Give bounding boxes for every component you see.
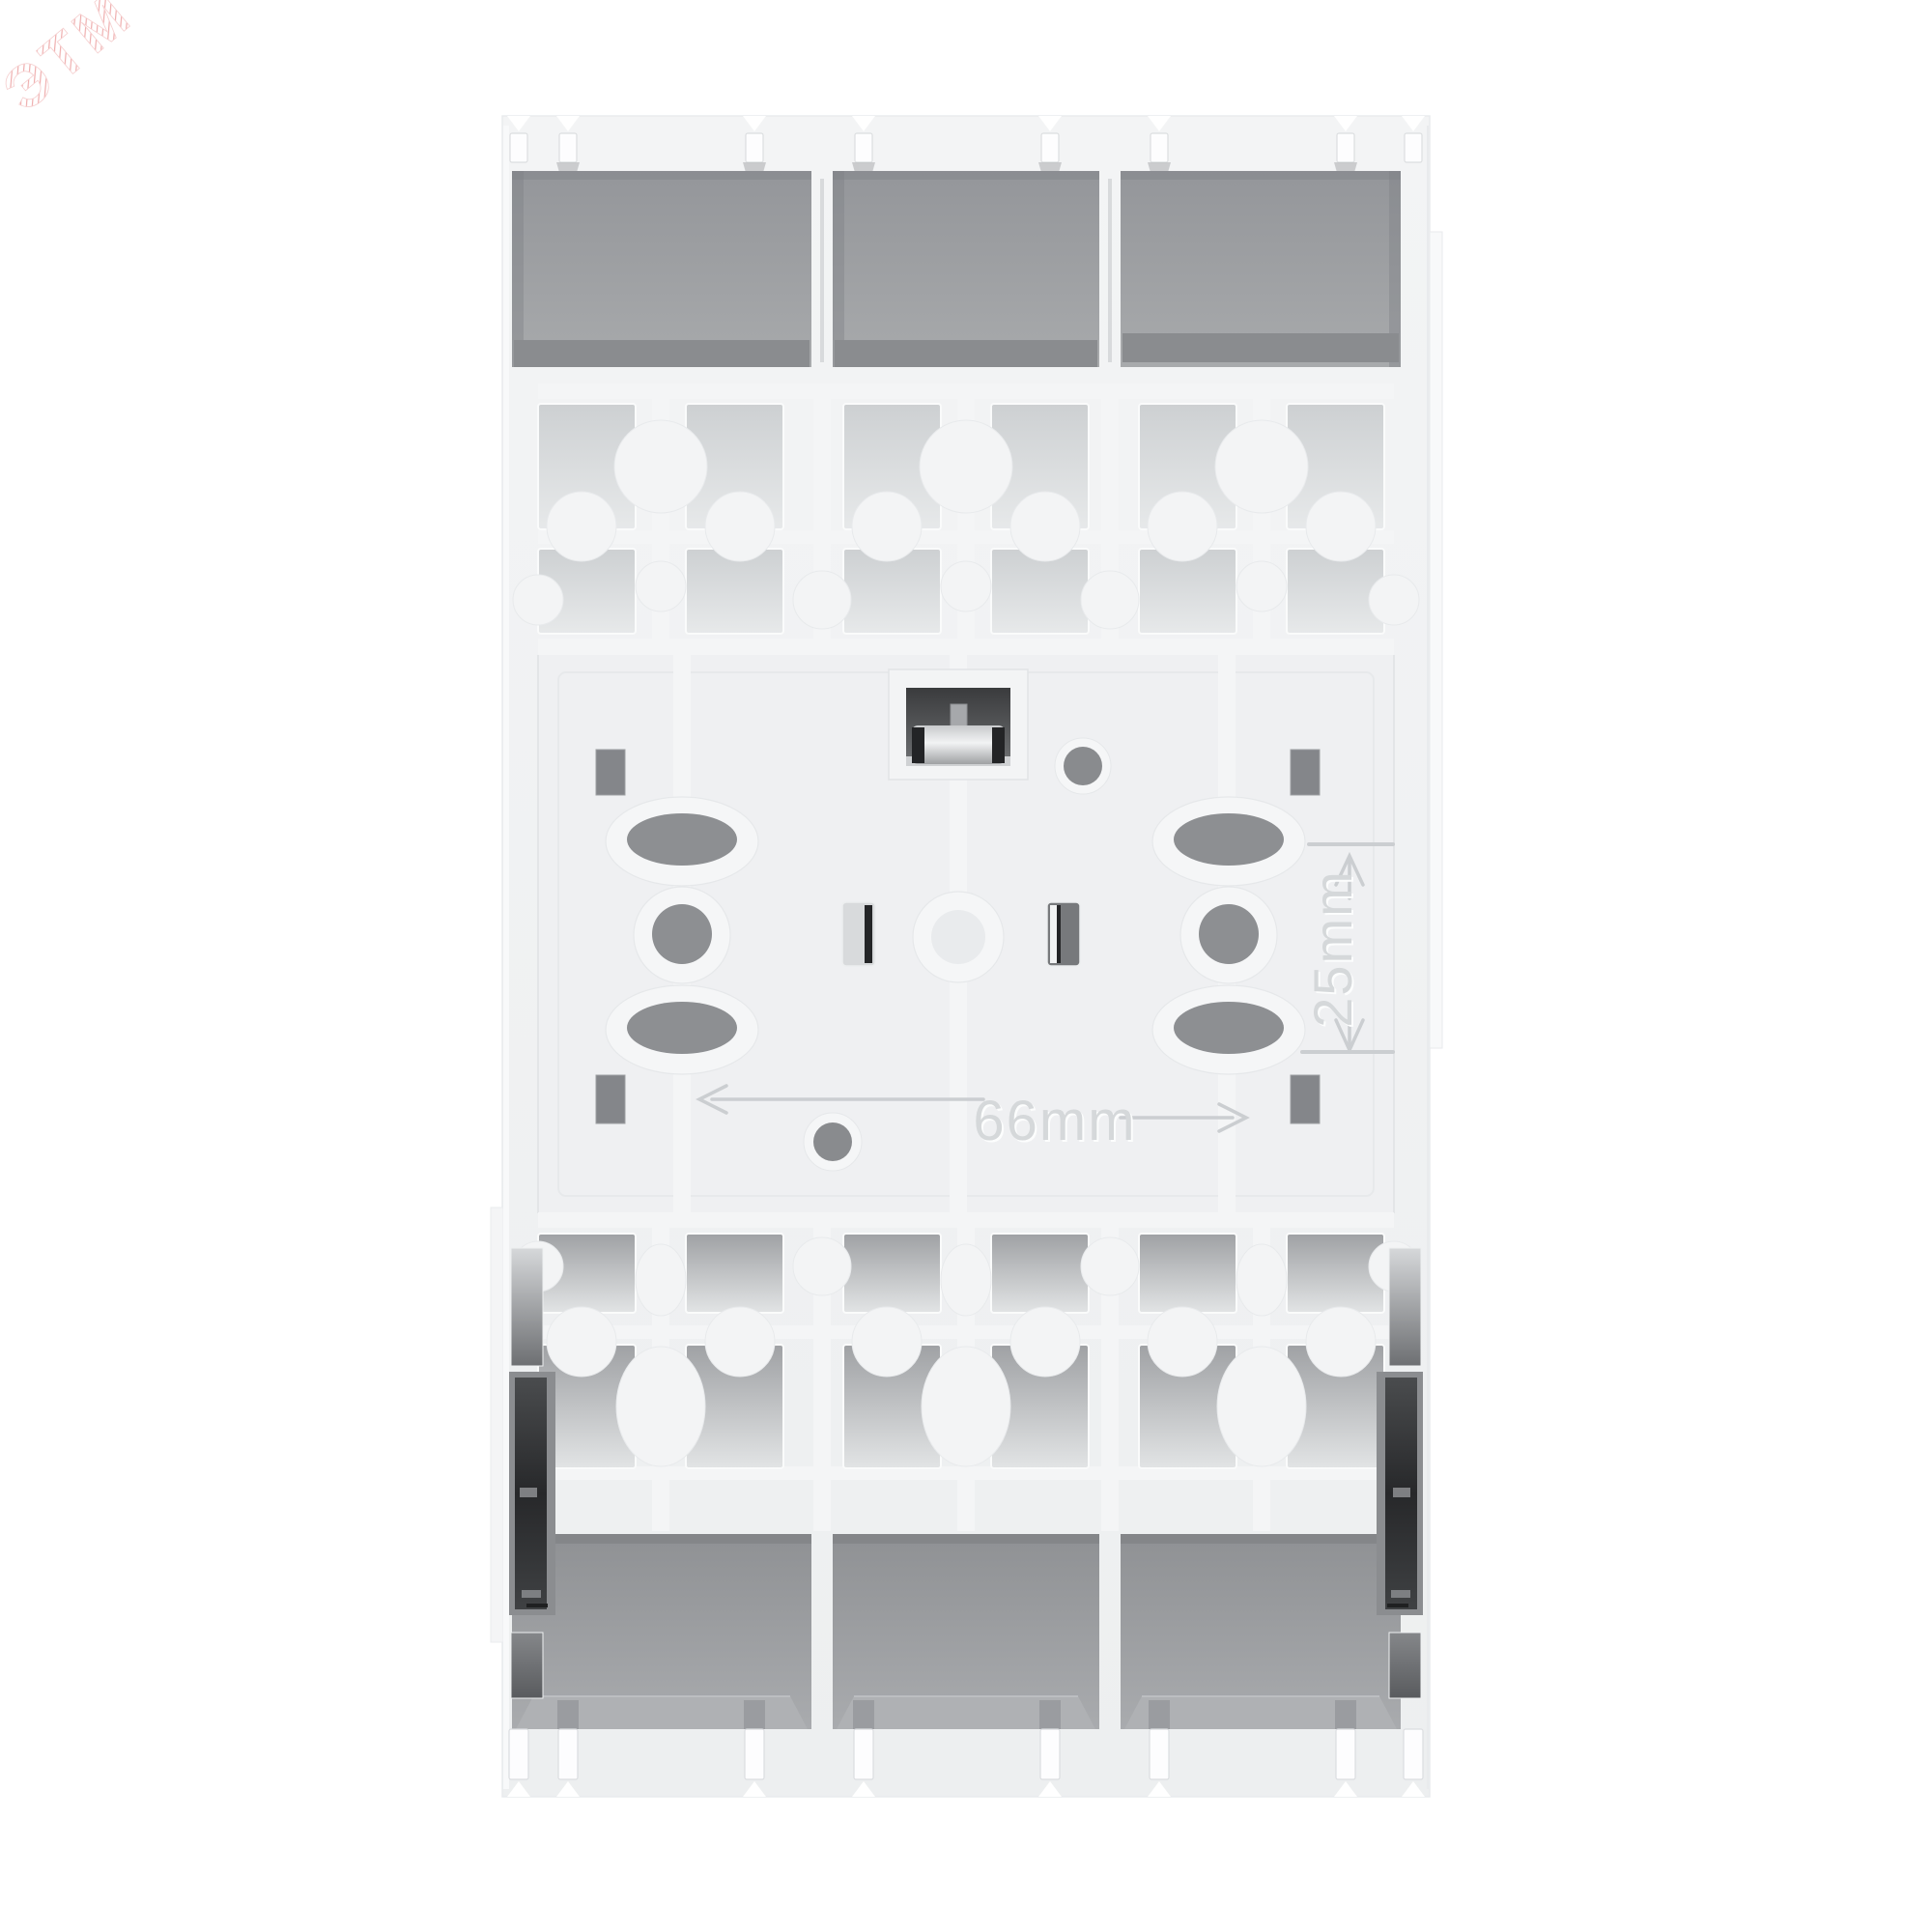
floor-latch (1335, 1700, 1356, 1729)
product-image: ЭТМ (0, 0, 1932, 1932)
slider-cap-left (912, 727, 924, 763)
device-rear-view: ЭТМ (0, 0, 1932, 1932)
boundary-boss (793, 1237, 851, 1295)
floor-latch (853, 1700, 874, 1729)
terminal-compartment (512, 1534, 811, 1729)
side-step-left (491, 1207, 503, 1642)
bottom-slot (558, 1729, 578, 1779)
boss-ellipse-small (636, 1244, 686, 1316)
top-slot (1405, 133, 1422, 162)
boss-circle-large (614, 420, 707, 513)
compartment-divider-groove (1108, 179, 1112, 362)
oval-slot (627, 1002, 737, 1054)
bottom-slot (1336, 1729, 1355, 1779)
boundary-boss (1081, 571, 1139, 629)
boss-circle (852, 1307, 922, 1377)
boss-circle-large (1215, 420, 1308, 513)
bottom-slot (854, 1729, 873, 1779)
rect-slot (1291, 1075, 1320, 1123)
rivet-boss-bottom (804, 1113, 862, 1171)
terminal-compartment (512, 171, 811, 367)
boss-circle (1306, 1307, 1376, 1377)
bottom-slot (1150, 1729, 1169, 1779)
rect-slot (596, 1075, 625, 1123)
boss-ellipse-large (922, 1347, 1010, 1466)
top-slot (1151, 133, 1168, 162)
slider-roller (912, 725, 1005, 764)
floor-latch (1039, 1700, 1061, 1729)
clip-slit-left (842, 902, 875, 966)
terminal-compartment (833, 1534, 1099, 1729)
boss-circle (852, 492, 922, 561)
watermark: ЭТМ (0, 0, 146, 125)
compartment-divider-groove (820, 179, 824, 362)
terminal-compartment (1121, 1534, 1401, 1729)
plate-edge-shadow (1393, 655, 1395, 1213)
boss-circle (1148, 1307, 1217, 1377)
body-right-shadow (1427, 126, 1429, 1789)
rib-cluster-module-3 (1139, 384, 1384, 655)
terminal-compartment (833, 171, 1099, 367)
top-slot (510, 133, 527, 162)
bottom-slot (745, 1729, 764, 1779)
boss-circle-small (1236, 561, 1287, 611)
clip-channel-lower (1389, 1633, 1421, 1698)
clip-channel-upper (511, 1248, 543, 1366)
boss-circle (1148, 492, 1217, 561)
boundary-boss (1369, 575, 1419, 625)
rect-slot (596, 750, 625, 795)
floor-latch (1149, 1700, 1170, 1729)
oval-slot (1174, 1002, 1284, 1054)
boss-circle (1010, 492, 1080, 561)
top-terminal-compartments (512, 171, 1401, 367)
boss-circle-small (941, 561, 991, 611)
floor-latch (557, 1700, 579, 1729)
mounting-plate: 66mm 66mm 25mm 25mm (537, 655, 1395, 1213)
clip-channel-upper (1389, 1248, 1421, 1366)
rib-cluster-module-2 (843, 384, 1089, 655)
watermark-text: ЭТМ (0, 0, 146, 125)
bottom-slot (1040, 1729, 1060, 1779)
top-slot (855, 133, 872, 162)
boundary-boss (793, 571, 851, 629)
boss-ellipse-small (1236, 1244, 1287, 1316)
din-rail-slider (889, 669, 1028, 780)
rib-cluster-module-1 (538, 384, 783, 655)
terminal-compartment (1121, 171, 1401, 367)
center-hole-opening (931, 910, 985, 964)
slider-cap-right (992, 727, 1005, 763)
boss-circle (547, 492, 616, 561)
bottom-slot (1404, 1729, 1423, 1779)
top-slot (1337, 133, 1354, 162)
boss-ellipse-small (941, 1244, 991, 1316)
boss-circle (1010, 1307, 1080, 1377)
side-step-right (1430, 232, 1442, 1048)
oval-slot (627, 813, 737, 866)
boss-circle-small (636, 561, 686, 611)
top-slot (1041, 133, 1059, 162)
rivet-boss-top (1055, 738, 1111, 794)
boss-circle (547, 1307, 616, 1377)
boundary-boss (1081, 1237, 1139, 1295)
body-left-highlight (503, 126, 509, 1789)
floor-latch (744, 1700, 765, 1729)
boss-circle (705, 1307, 775, 1377)
top-slot (559, 133, 577, 162)
top-slot (746, 133, 763, 162)
oval-slot (1174, 813, 1284, 866)
center-hole (913, 892, 1004, 982)
screw-boss (652, 904, 712, 964)
dimension-25mm-label: 25mm (1302, 869, 1363, 1028)
bottom-slot (509, 1729, 528, 1779)
boundary-boss (513, 575, 563, 625)
bottom-terminal-compartments (512, 1534, 1401, 1729)
boss-circle-large (920, 420, 1012, 513)
clip-channel-lower (511, 1633, 543, 1698)
clip-slit-right (1047, 902, 1080, 966)
boss-ellipse-large (1217, 1347, 1306, 1466)
boss-ellipse-large (616, 1347, 705, 1466)
rect-slot (1291, 750, 1320, 795)
boss-circle (705, 492, 775, 561)
plate-edge-shadow (537, 655, 539, 1213)
boss-circle (1306, 492, 1376, 561)
device: 66mm 66mm 25mm 25mm (491, 116, 1442, 1797)
screw-boss (1199, 904, 1259, 964)
dimension-66mm-label: 66mm (973, 1090, 1136, 1152)
